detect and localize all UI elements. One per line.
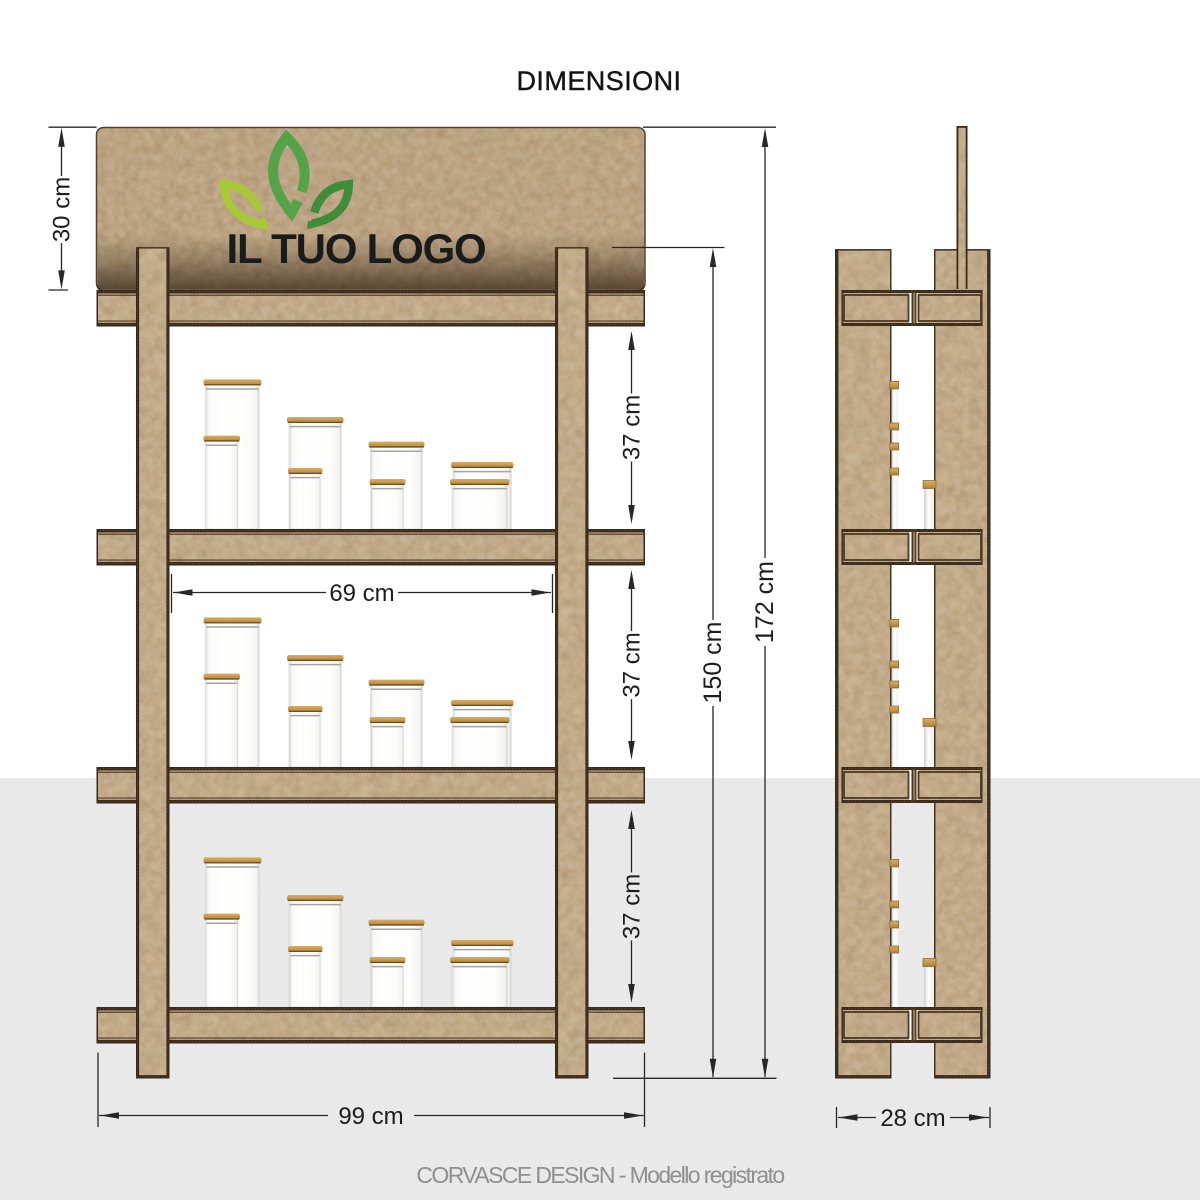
svg-text:30 cm: 30 cm [49, 177, 76, 242]
svg-text:37 cm: 37 cm [619, 874, 646, 939]
svg-text:99 cm: 99 cm [338, 1103, 403, 1130]
svg-text:DIMENSIONI: DIMENSIONI [516, 66, 681, 96]
svg-text:28 cm: 28 cm [880, 1105, 945, 1132]
svg-text:37 cm: 37 cm [619, 395, 646, 460]
svg-text:CORVASCE DESIGN - Modello regi: CORVASCE DESIGN - Modello registrato [416, 1162, 784, 1188]
svg-text:150 cm: 150 cm [699, 622, 727, 704]
svg-text:172 cm: 172 cm [751, 561, 779, 643]
svg-text:IL TUO LOGO: IL TUO LOGO [226, 225, 485, 272]
svg-text:69 cm: 69 cm [329, 580, 394, 607]
svg-text:37 cm: 37 cm [619, 632, 646, 697]
